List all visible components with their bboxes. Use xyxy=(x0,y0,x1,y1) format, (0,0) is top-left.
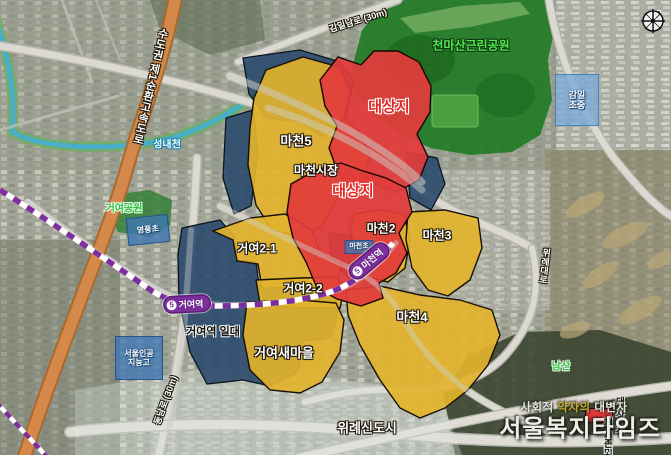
school-overlay-yeongpung: 영풍초 xyxy=(126,214,171,246)
school-label-yeongpung: 영풍초 xyxy=(128,223,169,236)
legend-row-preservation: 존치관리구역 xyxy=(573,436,613,455)
legend-label-preservation: 존치관리구역 xyxy=(604,436,613,455)
compass-rose-icon xyxy=(640,8,666,34)
map-base-layers xyxy=(0,0,671,455)
school-label-seoul-ai-line1: 서울인공 xyxy=(116,349,162,358)
map-canvas: 수도권 제1순환고속도로 감일남로 (30m) 동남로 (30m) 위례대로 성… xyxy=(0,0,671,455)
legend-label-target: 대상지 xyxy=(616,394,625,436)
compass: N xyxy=(640,8,671,64)
school-overlay-seoul-ai: 서울인공 지능고 xyxy=(115,336,163,380)
school-label-seoul-ai-line2: 지능고 xyxy=(116,358,162,367)
station-label-geoyeo: 거여역 xyxy=(178,297,203,311)
station-badge-geoyeo: 5 거여역 xyxy=(164,295,210,312)
subway-line5-icon: 5 xyxy=(166,300,177,311)
school-overlay-gamil: 감일 초중 xyxy=(555,74,599,126)
school-label-gamil-line1: 감일 xyxy=(556,90,598,100)
school-label-gamil-line2: 초중 xyxy=(556,100,598,110)
school-label-macheon: 마천초 xyxy=(346,243,373,251)
